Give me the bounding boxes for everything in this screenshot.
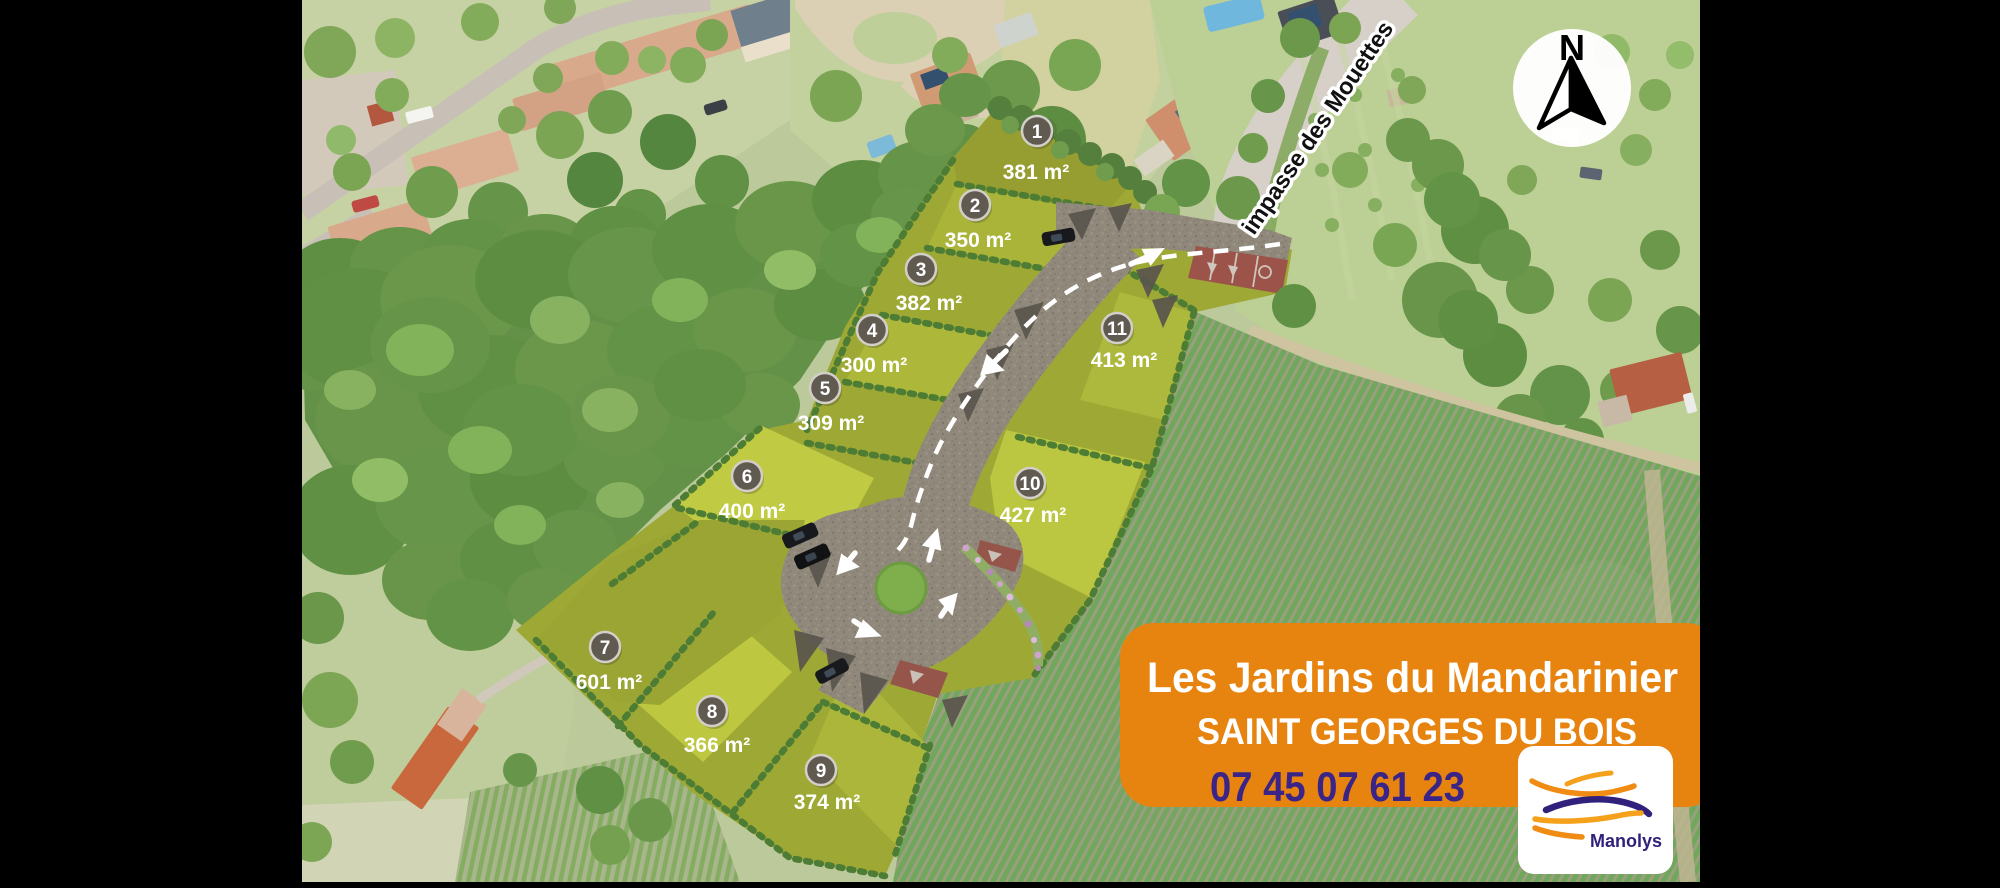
svg-text:1: 1 bbox=[1032, 122, 1043, 143]
svg-text:413 m²: 413 m² bbox=[1091, 349, 1158, 372]
svg-text:374 m²: 374 m² bbox=[794, 791, 861, 814]
svg-text:10: 10 bbox=[1019, 474, 1040, 495]
svg-text:9: 9 bbox=[816, 761, 827, 782]
svg-text:350 m²: 350 m² bbox=[945, 229, 1012, 252]
svg-text:6: 6 bbox=[742, 467, 753, 488]
svg-text:381 m²: 381 m² bbox=[1003, 161, 1070, 184]
svg-text:3: 3 bbox=[916, 260, 927, 281]
svg-text:8: 8 bbox=[707, 702, 718, 723]
svg-text:400 m²: 400 m² bbox=[719, 500, 786, 523]
svg-text:366 m²: 366 m² bbox=[684, 734, 751, 757]
svg-text:2: 2 bbox=[970, 196, 981, 217]
svg-text:07 45 07 61 23: 07 45 07 61 23 bbox=[1210, 763, 1465, 810]
svg-text:11: 11 bbox=[1107, 319, 1128, 340]
svg-text:309 m²: 309 m² bbox=[798, 412, 865, 435]
svg-text:601 m²: 601 m² bbox=[576, 671, 643, 694]
svg-text:382 m²: 382 m² bbox=[896, 292, 963, 315]
svg-text:4: 4 bbox=[867, 321, 878, 342]
svg-text:300 m²: 300 m² bbox=[841, 354, 908, 377]
svg-text:Les Jardins du Mandarinier: Les Jardins du Mandarinier bbox=[1147, 654, 1678, 702]
svg-text:SAINT GEORGES DU BOIS: SAINT GEORGES DU BOIS bbox=[1197, 711, 1637, 752]
svg-text:7: 7 bbox=[600, 638, 611, 659]
svg-text:427 m²: 427 m² bbox=[1000, 504, 1067, 527]
svg-text:Manolys: Manolys bbox=[1590, 831, 1662, 851]
svg-text:5: 5 bbox=[820, 379, 831, 400]
